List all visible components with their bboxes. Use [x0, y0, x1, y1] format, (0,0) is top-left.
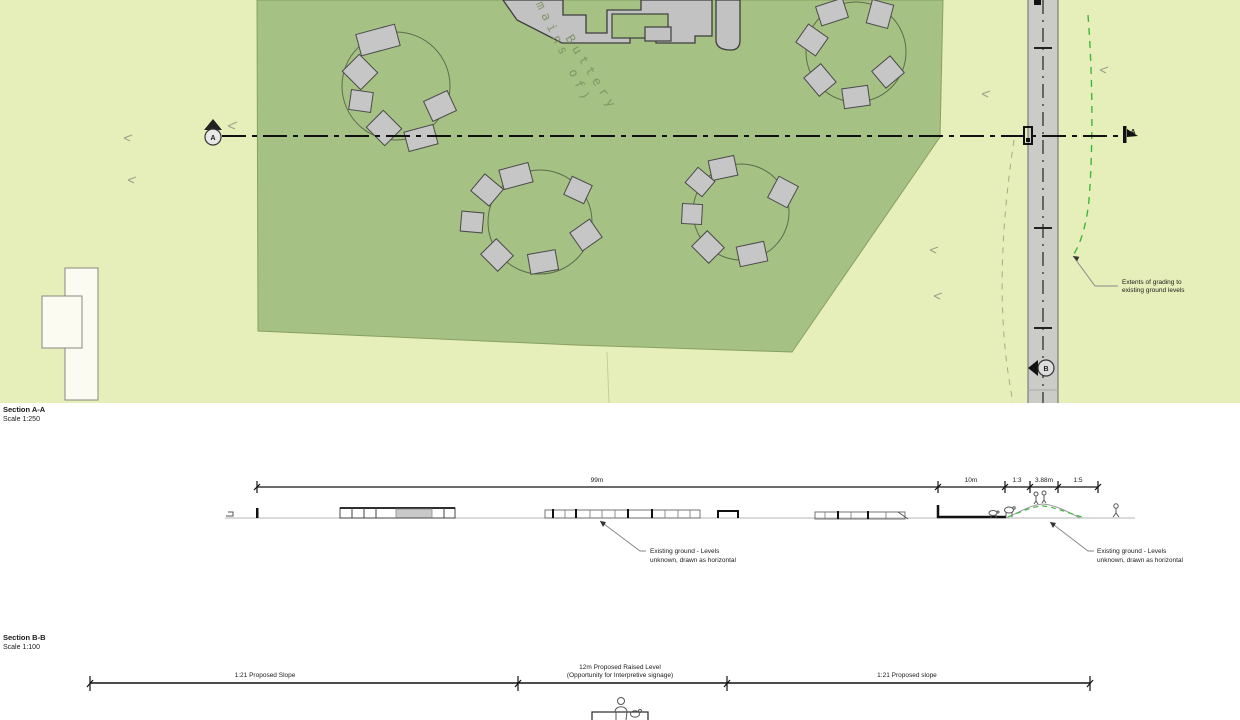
ruin-elevation-group2 — [545, 509, 700, 518]
bb-dim-mid-line2: (Opportunity for Interpretive signage) — [567, 672, 673, 679]
drawing-canvas: (remains of) Buttery — [0, 0, 1240, 720]
person-on-platform-icon — [615, 698, 627, 720]
sheep-on-platform-icon — [631, 710, 642, 718]
existing-ground-annotation-2: Existing ground - Levels unknown, drawn … — [1050, 522, 1184, 564]
ruin-elevation-bracket — [718, 511, 738, 518]
section-aa-scale: Scale 1:250 — [3, 416, 40, 423]
svg-text:unknown, drawn as horizontal: unknown, drawn as horizontal — [650, 557, 737, 564]
bb-dim-mid-line1: 12m Proposed Raised Level — [579, 664, 661, 671]
svg-text:A: A — [1130, 129, 1135, 136]
grading-note-line1: Extents of grading to — [1122, 279, 1182, 286]
section-aa-dimension-line: 99m 10m 1:3 3.88m 1:5 — [254, 477, 1101, 493]
dim-3-88m: 3.88m — [1035, 477, 1053, 484]
ruin-elevation-group1 — [340, 508, 455, 518]
existing-ground-annotation-1: Existing ground - Levels unknown, drawn … — [600, 521, 737, 564]
svg-text:A: A — [210, 135, 215, 142]
bb-dim-left: 1:21 Proposed Slope — [235, 672, 296, 679]
section-bb: Section B-B Scale 1:100 1:21 Proposed Sl… — [3, 633, 1093, 720]
section-bb-dimension-line: 1:21 Proposed Slope 12m Proposed Raised … — [87, 664, 1093, 691]
dim-1-5: 1:5 — [1073, 477, 1082, 484]
dim-10m: 10m — [965, 477, 978, 484]
road — [1028, 0, 1058, 403]
svg-text:unknown, drawn as horizontal: unknown, drawn as horizontal — [1097, 557, 1184, 564]
section-aa: Section A-A Scale 1:250 99m 10m 1:3 3.88… — [3, 405, 1184, 564]
svg-text:B: B — [1043, 366, 1048, 373]
section-end-glyph — [226, 512, 233, 516]
person-east-icon — [1113, 504, 1119, 517]
dim-1-3: 1:3 — [1012, 477, 1021, 484]
section-aa-title: Section A-A — [3, 405, 46, 414]
bb-dim-right: 1:21 Proposed slope — [877, 672, 937, 679]
dim-99m: 99m — [591, 477, 604, 484]
people-on-mound-icons — [1034, 491, 1046, 504]
site-plan-and-sections-drawing: (remains of) Buttery — [0, 0, 1240, 720]
section-bb-scale: Scale 1:100 — [3, 644, 40, 651]
section-bb-title: Section B-B — [3, 633, 46, 642]
site-plan: (remains of) Buttery — [0, 0, 1240, 403]
grading-note-line2: existing ground levels — [1122, 287, 1185, 294]
section-origin-tick — [256, 508, 259, 518]
svg-text:Existing ground - Levels: Existing ground - Levels — [1097, 548, 1167, 555]
svg-text:Existing ground - Levels: Existing ground - Levels — [650, 548, 720, 555]
